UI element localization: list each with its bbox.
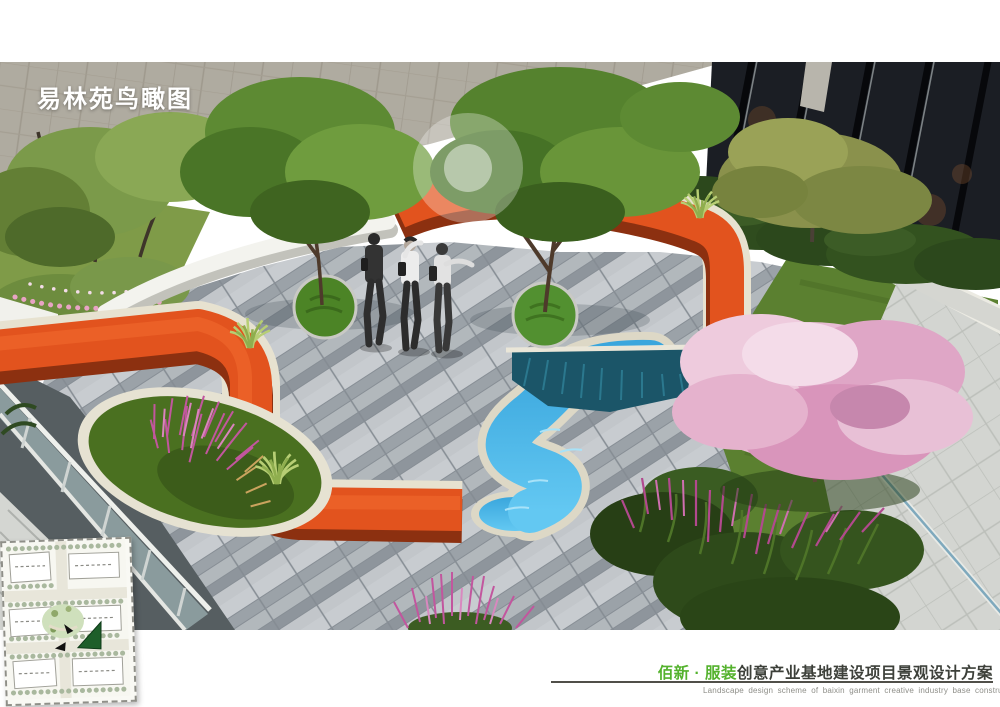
aerial-render	[0, 62, 1000, 630]
sun-glare	[413, 113, 523, 223]
page-title: 易林苑鸟瞰图	[37, 79, 193, 114]
project-subtitle-en: Landscape design scheme of baixin garmen…	[703, 686, 993, 695]
pool-rim	[506, 347, 698, 350]
brand-name: 佰新 · 服装	[658, 665, 737, 682]
project-title-cn: 佰新 · 服装创意产业基地建设项目景观设计方案	[658, 661, 993, 683]
presentation-board: 易林苑鸟瞰图	[0, 0, 1000, 707]
site-key-plan	[0, 537, 137, 706]
project-name: 创意产业基地建设项目景观设计方案	[737, 665, 993, 682]
